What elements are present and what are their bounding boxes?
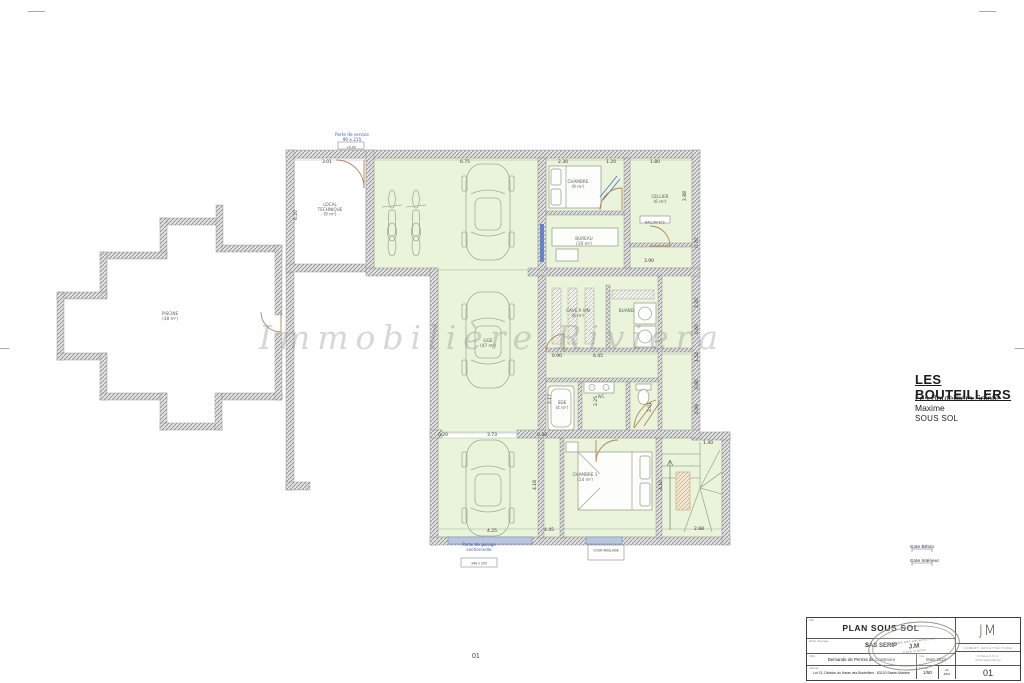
dimension-label: 4.10 [658, 480, 664, 490]
dimension-label: 0.30 [537, 432, 547, 438]
architect-line1: Architecte D.P.L.G. [975, 655, 1000, 658]
boxed-label: +0,00 [346, 146, 356, 150]
shelf [612, 290, 654, 299]
project-subtitle: Les Bouteilliers Sainte Maxime [915, 393, 1024, 413]
dimension-label: 1.20 [694, 298, 700, 308]
architect-logo-subtitle: JUBERT ARCHITECTURE [964, 646, 1013, 650]
plan-sheet: LOCALTECHNIQUE(9 m²)CHAMBRE(9 m²)BUREAU(… [0, 0, 1024, 683]
boxed-label: 240 x 200 [471, 562, 487, 566]
window [540, 224, 544, 262]
dimension-label: 6.20 [293, 210, 299, 220]
pool-structure [57, 205, 310, 490]
floor-plan: LOCALTECHNIQUE(9 m²)CHAMBRE(9 m²)BUREAU(… [0, 0, 1024, 683]
room-label: CELLIER(6 m²) [651, 194, 668, 204]
dimension-label: 3.90 [644, 258, 654, 264]
dimension-label: 1.54 [694, 352, 700, 362]
dimension-symbol [910, 545, 934, 553]
dimension-label: 2.01 [647, 402, 653, 412]
sheet-number-center: 01 [472, 653, 480, 660]
dimension-label: 2.30 [558, 159, 568, 165]
dimension-label: 1.20 [606, 159, 616, 165]
dimension-label: 3.73 [487, 432, 497, 438]
site-address: Lot 13, Division du Haras des Bouteiller… [811, 671, 912, 675]
dimension-label: 6.45 [593, 353, 603, 359]
blue-annotation: Porte de garagesectionnelle [462, 542, 496, 552]
dimension-label: 4.18 [532, 480, 538, 490]
dimension-label: 0.70 [694, 238, 700, 248]
dimension-label: 0.20 [438, 432, 448, 438]
room-cellier [630, 158, 692, 268]
dimension-label: 0.60 [694, 379, 700, 389]
dimension-label: 2.17 [547, 394, 553, 404]
project-level: SOUS SOL [915, 414, 958, 423]
blue-annotation: Porte de service90 x 215 [335, 132, 369, 142]
dimension-label: 4.45 [544, 527, 554, 533]
dimension-label: 6.75 [460, 159, 470, 165]
room-label: BUAND. [619, 308, 636, 313]
window-well [588, 545, 624, 560]
scale-value: 1/50 [923, 670, 932, 675]
legend-item-cote-beton: Cote Béton [910, 545, 934, 550]
format-year: 2013 [944, 673, 951, 676]
dimension-label: 2.88 [694, 526, 704, 532]
dimension-label: 2.88 [682, 191, 688, 201]
room-label: PISCINE(38 m²) [162, 311, 179, 321]
sheet-number: 01 [983, 668, 993, 678]
dimension-label: 4.25 [487, 528, 497, 534]
boxed-label: COUR ANGLAISE [593, 549, 619, 553]
dimension-label: 0.90 [552, 353, 562, 359]
dimension-label: 0.99 [694, 404, 700, 414]
sink-icon [584, 382, 614, 393]
legend-item-cote-interieur: Cote Intérieur [910, 559, 939, 564]
dimension-label: 3.01 [322, 159, 332, 165]
dimension-symbol [910, 559, 934, 567]
window [586, 537, 622, 544]
dimension-label: 0.60 [694, 324, 700, 334]
room-garage-top [374, 158, 538, 270]
shelf [585, 288, 594, 344]
room-label: BUREAU(10 m²) [575, 236, 592, 246]
architect-logo: JM [979, 623, 997, 639]
dimension-label: 1.40 [703, 440, 713, 446]
dimension-label: 1.80 [650, 159, 660, 165]
architect-line2: 83120 Sainte-Maxime [975, 659, 1000, 662]
dimension-label: 2.25 [593, 396, 599, 406]
boxed-label: BALLON ECS [645, 221, 664, 225]
